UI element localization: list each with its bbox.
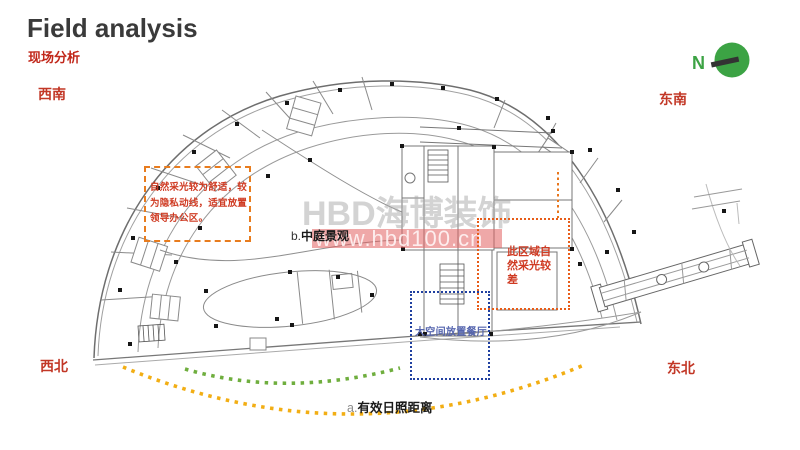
- leadership-zone-text: 自然采光较为舒适，较为隐私动线，适宜放置领导办公区。: [150, 180, 248, 227]
- poor-daylight-text: 此区域自然采光较差: [507, 245, 555, 287]
- compass-n-label: N: [692, 53, 705, 73]
- direction-label-northwest: 西北: [40, 356, 68, 376]
- direction-label-southeast: 东南: [659, 89, 687, 109]
- atrium-view-prefix: b.: [291, 229, 301, 243]
- atrium-view-label: b.中庭景观: [291, 227, 349, 244]
- sunlight-distance-text: 有效日照距离: [357, 401, 432, 415]
- atrium-view-text: 中庭景观: [301, 229, 349, 243]
- direction-label-northeast: 东北: [667, 358, 695, 378]
- leadership-zone-box: 自然采光较为舒适，较为隐私动线，适宜放置领导办公区。: [144, 166, 251, 242]
- dining-space-box: 大空间放置餐厅: [410, 291, 490, 380]
- page-title: Field analysis: [27, 13, 198, 44]
- poor-daylight-box: 此区域自然采光较差: [477, 218, 570, 310]
- north-arrow-icon: N: [670, 33, 770, 89]
- sunlight-arc-green: [185, 368, 400, 383]
- page-subtitle: 现场分析: [28, 47, 80, 66]
- bridge: [591, 239, 759, 312]
- direction-label-southwest: 西南: [38, 84, 66, 104]
- slide: HBD海博装饰 www.hbd100.cn Field analysis 现场分…: [0, 0, 800, 450]
- sunlight-distance-prefix: a.: [347, 401, 357, 415]
- dining-space-text: 大空间放置餐厅: [415, 323, 491, 338]
- compass: N: [670, 33, 770, 89]
- sunlight-distance-label: a.有效日照距离: [347, 397, 432, 416]
